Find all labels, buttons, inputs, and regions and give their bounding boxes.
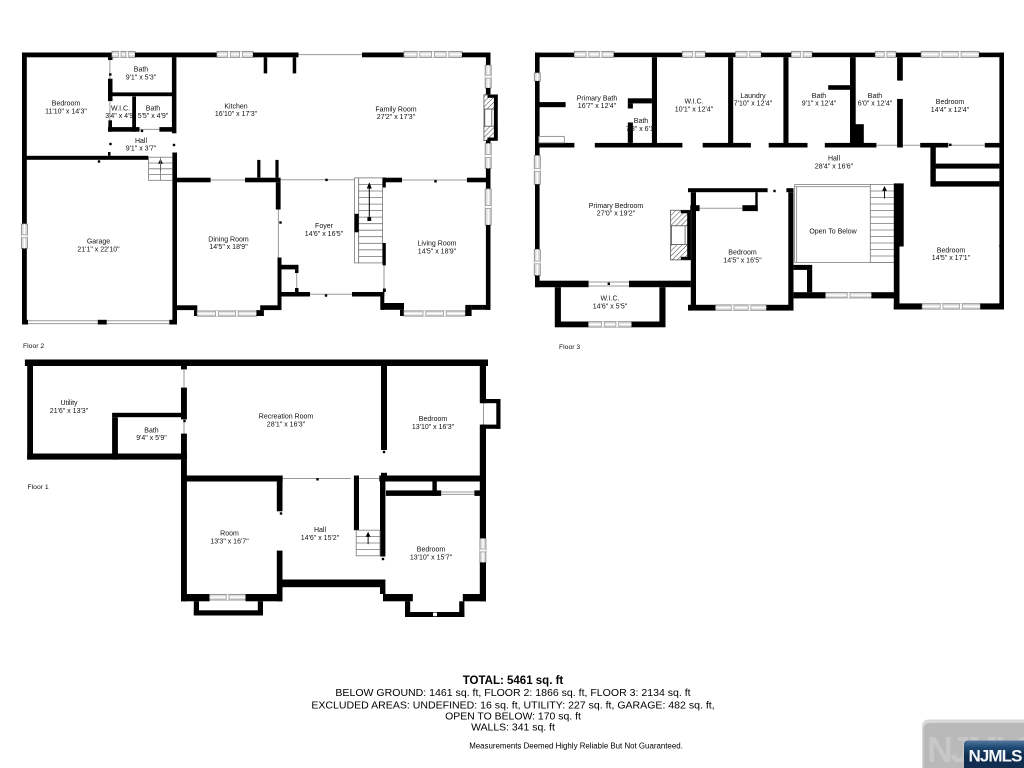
- svg-text:9'1" x 3'7": 9'1" x 3'7": [126, 146, 157, 153]
- svg-text:Family Room: Family Room: [375, 106, 416, 113]
- svg-text:Bath: Bath: [812, 93, 827, 100]
- svg-text:16'7" x 12'4": 16'7" x 12'4": [578, 103, 617, 110]
- svg-text:7'8" x 6'1": 7'8" x 6'1": [626, 126, 657, 133]
- svg-text:7'10" x 12'4": 7'10" x 12'4": [734, 101, 773, 108]
- svg-text:Primary Bath: Primary Bath: [577, 95, 618, 102]
- svg-text:OPEN TO BELOW: 170 sq. ft: OPEN TO BELOW: 170 sq. ft: [445, 712, 581, 723]
- svg-text:11'10" x 14'3": 11'10" x 14'3": [45, 108, 87, 115]
- svg-text:Open To Below: Open To Below: [809, 229, 857, 236]
- svg-text:14'5" x 17'1": 14'5" x 17'1": [932, 255, 971, 262]
- svg-text:Floor 2: Floor 2: [23, 343, 44, 350]
- svg-text:Bedroom: Bedroom: [52, 101, 81, 108]
- svg-text:Bath: Bath: [868, 93, 883, 100]
- svg-text:13'10" x 16'3": 13'10" x 16'3": [412, 424, 455, 431]
- svg-text:27'0" x 19'2": 27'0" x 19'2": [597, 211, 636, 218]
- svg-text:Utility: Utility: [60, 400, 78, 407]
- svg-text:13'10" x 15'7": 13'10" x 15'7": [410, 554, 453, 561]
- svg-text:28'1" x 16'3": 28'1" x 16'3": [267, 422, 306, 429]
- svg-text:Floor 1: Floor 1: [28, 484, 49, 491]
- svg-text:W.I.C.: W.I.C.: [111, 105, 130, 112]
- svg-text:Foyer: Foyer: [315, 223, 334, 230]
- svg-text:14'6" x 5'5": 14'6" x 5'5": [593, 303, 628, 310]
- svg-text:14'5" x 18'9": 14'5" x 18'9": [209, 244, 248, 251]
- svg-text:Bedroom: Bedroom: [936, 99, 965, 106]
- svg-text:TOTAL: 5461 sq. ft: TOTAL: 5461 sq. ft: [463, 675, 564, 687]
- svg-text:Bath: Bath: [634, 118, 649, 125]
- svg-text:9'1" x 5'3": 9'1" x 5'3": [126, 74, 157, 81]
- svg-text:Living Room: Living Room: [418, 241, 457, 248]
- svg-text:3'4" x 4'9": 3'4" x 4'9": [105, 113, 136, 120]
- svg-text:WALLS: 341 sq. ft: WALLS: 341 sq. ft: [471, 723, 555, 734]
- svg-text:14'4" x 12'4": 14'4" x 12'4": [931, 107, 970, 114]
- svg-text:Floor 3: Floor 3: [559, 344, 580, 351]
- svg-text:21'1" x 22'10": 21'1" x 22'10": [77, 247, 120, 254]
- svg-text:Primary Bedroom: Primary Bedroom: [589, 203, 644, 210]
- svg-text:W.I.C.: W.I.C.: [684, 99, 703, 106]
- svg-text:Bath: Bath: [144, 427, 159, 434]
- svg-text:9'4" x 5'9": 9'4" x 5'9": [136, 435, 167, 442]
- svg-text:BELOW GROUND: 1461 sq. ft, FLO: BELOW GROUND: 1461 sq. ft, FLOOR 2: 1866…: [335, 687, 690, 699]
- svg-text:Room: Room: [220, 531, 239, 538]
- svg-text:Bedroom: Bedroom: [937, 247, 966, 254]
- svg-text:Hall: Hall: [828, 156, 841, 163]
- svg-text:W.I.C.: W.I.C.: [600, 296, 619, 303]
- svg-text:14'6" x 16'5": 14'6" x 16'5": [305, 231, 344, 238]
- svg-text:NJMLS: NJMLS: [969, 747, 1023, 766]
- svg-text:Bedroom: Bedroom: [419, 416, 448, 423]
- svg-text:Bedroom: Bedroom: [728, 250, 757, 257]
- svg-text:13'3" x 16'7": 13'3" x 16'7": [210, 538, 249, 545]
- svg-text:28'4" x 16'6": 28'4" x 16'6": [815, 163, 854, 170]
- svg-text:Hall: Hall: [314, 527, 327, 534]
- svg-text:16'10" x 17'3": 16'10" x 17'3": [215, 111, 258, 118]
- svg-text:Bedroom: Bedroom: [417, 547, 446, 554]
- svg-text:9'1" x 12'4": 9'1" x 12'4": [802, 101, 837, 108]
- svg-text:Kitchen: Kitchen: [224, 103, 247, 110]
- svg-text:Garage: Garage: [87, 239, 110, 246]
- svg-text:5'5" x 4'9": 5'5" x 4'9": [138, 113, 169, 120]
- svg-text:6'0" x 12'4": 6'0" x 12'4": [858, 101, 893, 108]
- svg-text:Hall: Hall: [135, 138, 148, 145]
- svg-text:Measurements Deemed Highly Rel: Measurements Deemed Highly Reliable But …: [469, 742, 683, 751]
- svg-text:14'5" x 16'5": 14'5" x 16'5": [723, 258, 762, 265]
- svg-text:Bath: Bath: [134, 67, 149, 74]
- svg-text:Recreation Room: Recreation Room: [259, 414, 314, 421]
- svg-text:10'1" x 12'4": 10'1" x 12'4": [675, 107, 714, 114]
- svg-text:27'2" x 17'3": 27'2" x 17'3": [377, 114, 416, 121]
- svg-text:Dining Room: Dining Room: [208, 236, 249, 243]
- svg-text:EXCLUDED AREAS: UNDEFINED: 16: EXCLUDED AREAS: UNDEFINED: 16 sq. ft, UT…: [311, 699, 714, 711]
- svg-text:14'5" x 18'9": 14'5" x 18'9": [418, 249, 457, 256]
- svg-text:Laundry: Laundry: [740, 93, 766, 100]
- svg-text:14'6" x 15'2": 14'6" x 15'2": [301, 535, 340, 542]
- svg-text:Bath: Bath: [146, 105, 161, 112]
- svg-text:21'6" x 13'3": 21'6" x 13'3": [50, 408, 89, 415]
